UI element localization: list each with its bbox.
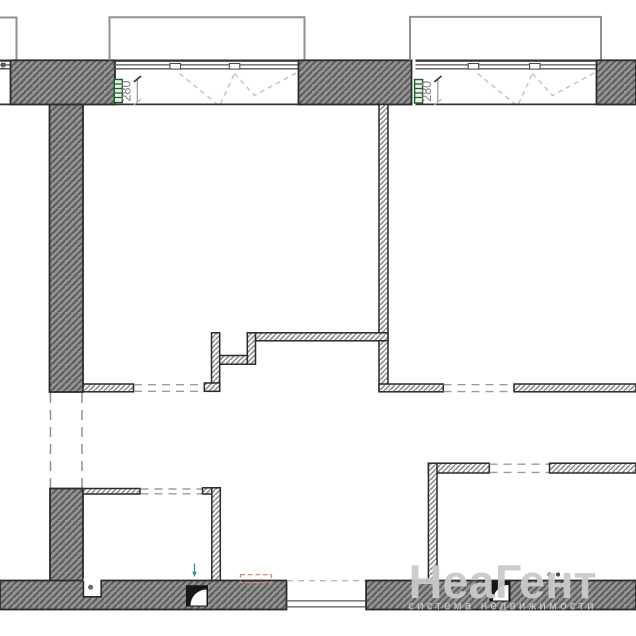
svg-text:280: 280 — [120, 81, 134, 102]
svg-text:280: 280 — [420, 81, 434, 102]
svg-text:система недвижимости: система недвижимости — [408, 601, 597, 613]
